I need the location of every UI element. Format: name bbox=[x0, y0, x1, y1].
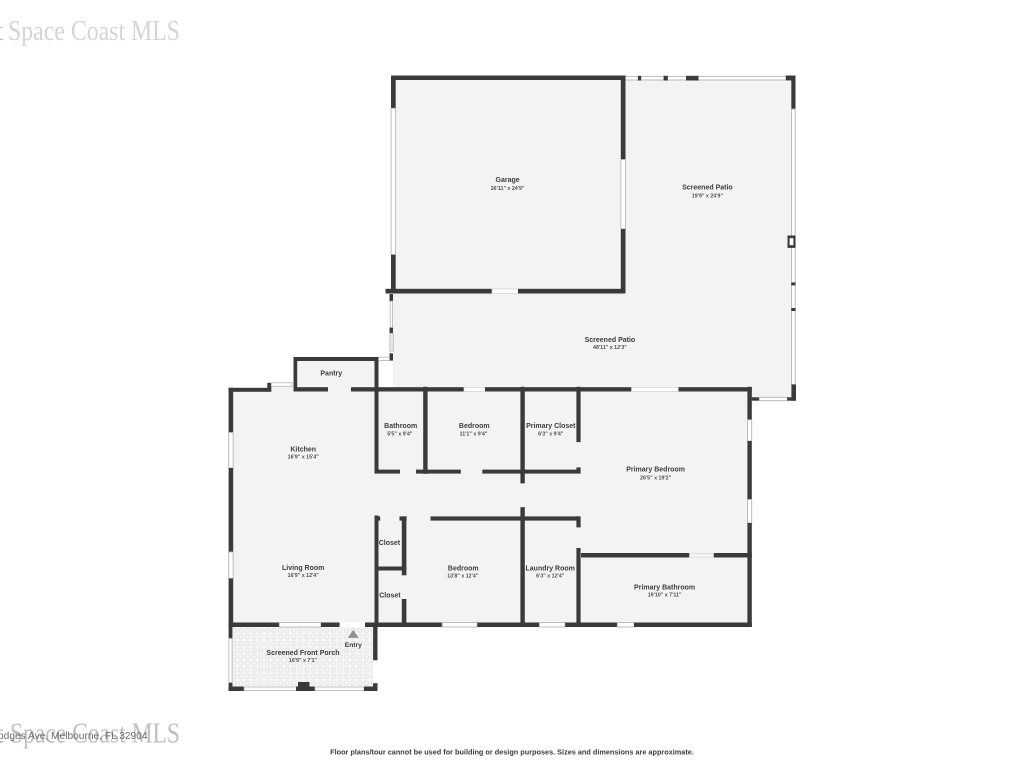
svg-text:Primary Closet: Primary Closet bbox=[526, 423, 576, 430]
svg-text:6'3" x 9'4": 6'3" x 9'4" bbox=[538, 431, 564, 437]
svg-text:Kitchen: Kitchen bbox=[290, 446, 316, 453]
svg-text:Living Room: Living Room bbox=[282, 565, 324, 572]
svg-text:Pantry: Pantry bbox=[320, 371, 342, 378]
svg-text:16'9" x 7'1": 16'9" x 7'1" bbox=[289, 658, 318, 664]
svg-text:16'9" x 12'4": 16'9" x 12'4" bbox=[288, 573, 320, 579]
svg-text:13'8" x 12'4": 13'8" x 12'4" bbox=[447, 573, 479, 579]
svg-text:Entry: Entry bbox=[345, 642, 362, 649]
svg-text:48'11" x 12'3": 48'11" x 12'3" bbox=[593, 345, 627, 351]
svg-text:11'1" x 9'4": 11'1" x 9'4" bbox=[460, 431, 488, 437]
svg-text:Space Coast MLS: Space Coast MLS bbox=[8, 15, 180, 47]
svg-text:16'9" x 15'4": 16'9" x 15'4" bbox=[288, 455, 320, 461]
svg-text:Screened Front Porch: Screened Front Porch bbox=[266, 650, 339, 657]
svg-text:26'5" x 19'2": 26'5" x 19'2" bbox=[640, 476, 672, 482]
svg-text:odges Ave, Melbourne, FL 32904: odges Ave, Melbourne, FL 32904 bbox=[0, 731, 148, 742]
svg-text:19'9" x 24'9": 19'9" x 24'9" bbox=[692, 194, 724, 200]
svg-text:Screened Patio: Screened Patio bbox=[585, 337, 636, 344]
svg-text:Floor plans/tour cannot be use: Floor plans/tour cannot be used for buil… bbox=[330, 748, 694, 757]
svg-text:Screened Patio: Screened Patio bbox=[682, 185, 733, 192]
svg-text:t: t bbox=[0, 15, 4, 47]
svg-text:Primary Bathroom: Primary Bathroom bbox=[634, 585, 695, 592]
svg-text:Primary Bedroom: Primary Bedroom bbox=[626, 467, 685, 474]
svg-text:Laundry Room: Laundry Room bbox=[526, 565, 575, 572]
svg-text:Bathroom: Bathroom bbox=[384, 423, 417, 430]
svg-text:Closet: Closet bbox=[379, 540, 401, 547]
svg-text:26'11" x 24'9": 26'11" x 24'9" bbox=[491, 186, 525, 192]
svg-text:5'5" x 9'4": 5'5" x 9'4" bbox=[387, 431, 413, 437]
svg-text:Closet: Closet bbox=[379, 593, 401, 600]
svg-text:Garage: Garage bbox=[496, 177, 520, 184]
svg-text:Bedroom: Bedroom bbox=[459, 423, 490, 430]
svg-text:Bedroom: Bedroom bbox=[448, 566, 479, 573]
svg-text:19'10" x 7'11": 19'10" x 7'11" bbox=[648, 593, 682, 599]
svg-text:6'3" x 12'4": 6'3" x 12'4" bbox=[536, 573, 565, 579]
